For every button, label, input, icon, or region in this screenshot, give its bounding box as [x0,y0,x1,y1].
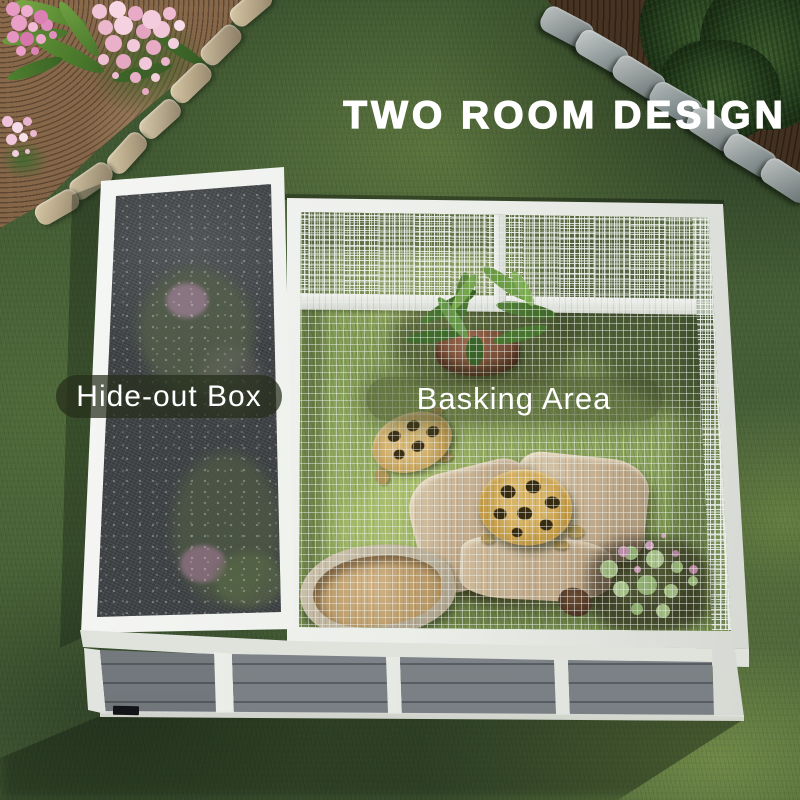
rose-flowers [92,4,107,19]
phlox-greenery [0,140,48,180]
tortoise-enclosure-photo: TWO ROOM DESIGN Hide-out Box Basking Are… [0,0,800,800]
screen-flower-silhouette [180,545,226,583]
room-label-hideout-text: Hide-out Box [76,380,261,414]
room-label-hideout: Hide-out Box [56,375,282,418]
room-label-basking-text: Basking Area [417,381,612,417]
screen-leaf-silhouette [214,552,284,608]
rose-greenery [86,8,206,118]
brand-label [113,706,139,715]
screen-plant-silhouette [172,452,280,604]
phlox-flowers [6,2,20,16]
screen-flower-silhouette [166,283,208,318]
heading-two-room-design: TWO ROOM DESIGN [340,94,790,138]
room-label-basking: Basking Area [366,377,662,421]
phlox-small-flowers [2,116,13,127]
